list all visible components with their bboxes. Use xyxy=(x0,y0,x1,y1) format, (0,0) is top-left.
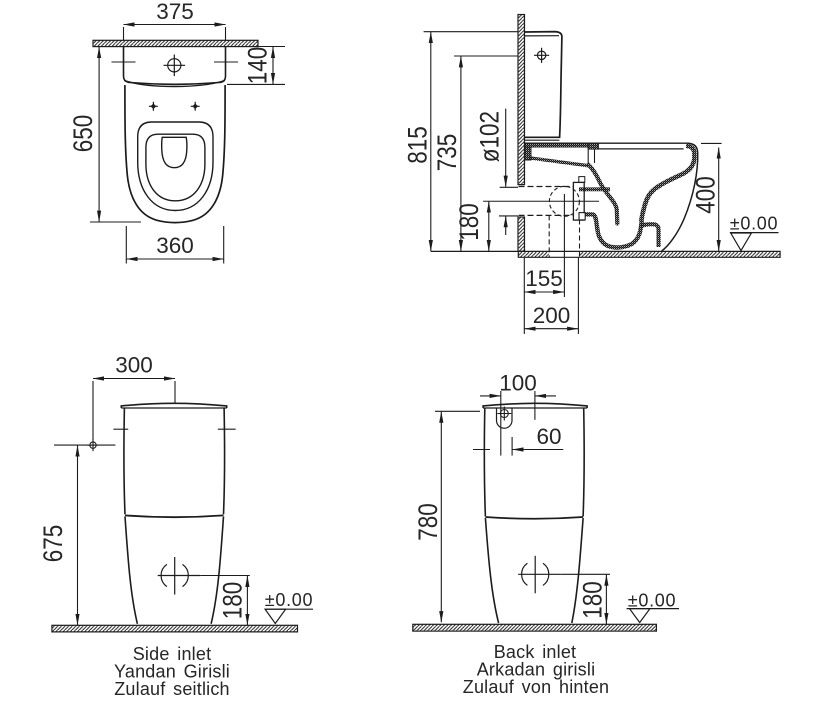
svg-text:180: 180 xyxy=(455,203,484,241)
svg-text:180: 180 xyxy=(579,581,608,619)
svg-text:140: 140 xyxy=(244,47,273,85)
svg-text:375: 375 xyxy=(156,0,194,24)
svg-text:±0.00: ±0.00 xyxy=(730,214,778,234)
svg-text:ø102: ø102 xyxy=(476,111,505,162)
svg-text:100: 100 xyxy=(499,371,537,396)
svg-text:155: 155 xyxy=(525,266,563,291)
svg-text:60: 60 xyxy=(536,424,561,449)
svg-text:180: 180 xyxy=(219,582,248,620)
svg-text:200: 200 xyxy=(533,303,571,328)
svg-text:735: 735 xyxy=(433,134,462,172)
svg-text:±0.00: ±0.00 xyxy=(628,591,676,611)
svg-text:815: 815 xyxy=(404,126,433,164)
svg-text:300: 300 xyxy=(115,353,153,378)
svg-text:400: 400 xyxy=(692,176,721,214)
svg-text:Zulauf von hinten: Zulauf von hinten xyxy=(463,677,610,697)
svg-text:650: 650 xyxy=(69,115,98,153)
svg-text:±0.00: ±0.00 xyxy=(265,590,313,610)
svg-text:Zulauf seitlich: Zulauf seitlich xyxy=(114,679,230,699)
svg-text:780: 780 xyxy=(414,503,443,541)
svg-text:675: 675 xyxy=(39,525,68,563)
svg-text:360: 360 xyxy=(156,233,194,258)
